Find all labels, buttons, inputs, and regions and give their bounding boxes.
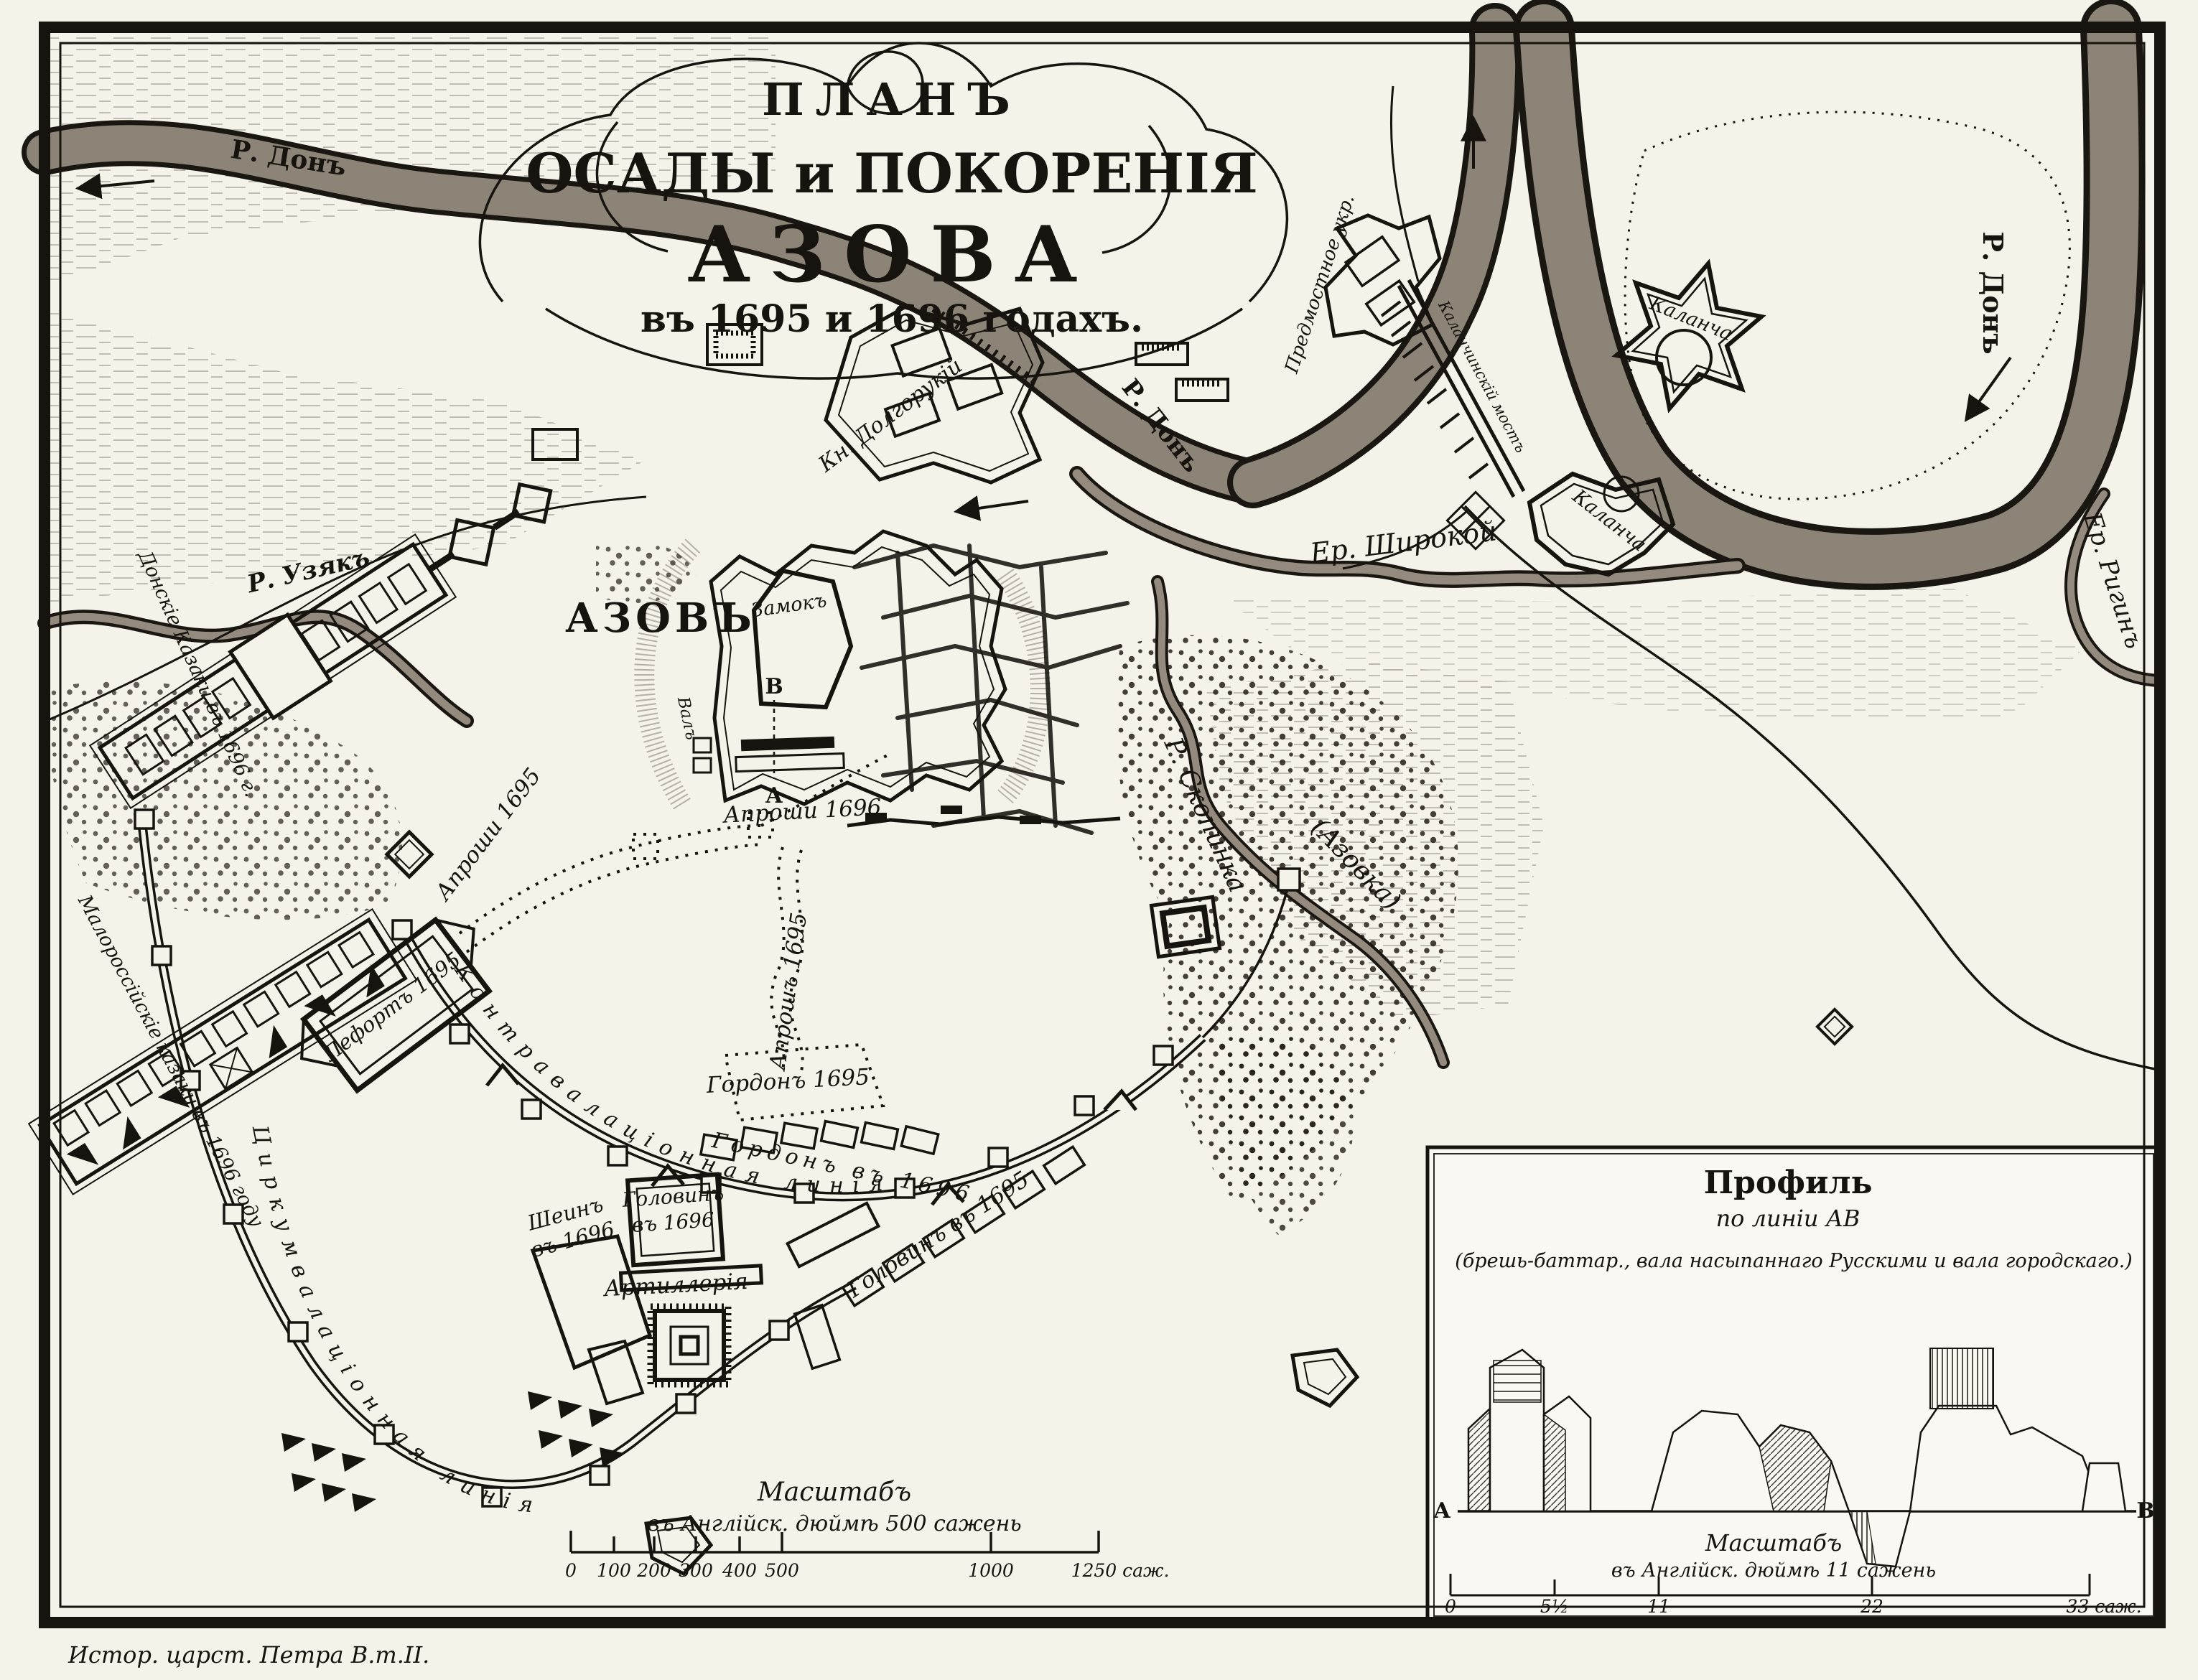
diamond-redoubt-road (1817, 1009, 1852, 1044)
source-caption: Истор. царст. Петра В.т.II. (67, 1641, 429, 1669)
map-scale-title: Масштабъ (757, 1478, 911, 1507)
inset-note: (брешь-баттар., вала насыпаннаго Русским… (1455, 1250, 2132, 1272)
inset-scale-title: Масштабъ (1705, 1529, 1842, 1557)
inset-point-a: A (1433, 1498, 1450, 1523)
circumvallation-line-label-text: Циркумвалаціонная линія (247, 1122, 544, 1518)
title-line1: ПЛАНЪ (762, 73, 1022, 126)
map-scale-tick: 100 (597, 1560, 631, 1581)
pentagon-redoubt-east (1293, 1350, 1357, 1406)
map-engraving: ПЛАНЪ ОСАДЫ и ПОКОРЕНІЯ АЗОВА въ 1695 и … (0, 0, 2198, 1680)
inset-title: Профиль (1704, 1165, 1873, 1201)
title-line4: въ 1695 и 1696 годахъ. (641, 297, 1143, 341)
aprosh-1695-vertical-label: Апрошъ 1695 (765, 911, 813, 1073)
redoubt-north-line (1278, 869, 1300, 890)
map-scale-tick: 200 (636, 1560, 671, 1581)
aproshi-1695-label: Апроши 1695 (429, 763, 546, 906)
map-scale: Масштабъ въ Англійск. дюймѣ 500 сажень 0… (565, 1478, 1169, 1581)
kalancha-star-label: Каланча (1646, 292, 1736, 345)
map-scale-tick: 0 (565, 1560, 577, 1581)
black-wedges-left (281, 1433, 376, 1512)
map-scale-tick: 1000 (968, 1560, 1014, 1581)
malorossian-cossacks-label: Малороссійскіе казаки въ 1696 году (73, 891, 269, 1231)
kalancha-star-fort (1616, 263, 1761, 409)
map-scale-tick: 300 (679, 1560, 713, 1581)
circumvallation-line-label: Циркумвалаціонная линія (247, 1122, 544, 1518)
channel-rigin-label: Ер. Ригинъ (2077, 508, 2148, 653)
profile-inset: Профиль по линіи АВ (брешь-баттар., вала… (1428, 1147, 2160, 1623)
map-scale-subtitle: въ Англійск. дюймѣ 500 сажень (647, 1511, 1022, 1536)
title-line2: ОСАДЫ и ПОКОРЕНІЯ (526, 141, 1258, 205)
golovin-1696-label-line2: въ 1696 (631, 1208, 715, 1237)
zamok-label: Замокъ (750, 589, 828, 622)
predmostnoe-label: Предмостное укр. (1281, 192, 1359, 376)
inset-point-b: B (2136, 1498, 2154, 1523)
point-b-label: В (765, 674, 783, 699)
river-don-right-label: Р. Донъ (1977, 231, 2009, 354)
map-scale-tick: 400 (722, 1560, 757, 1581)
inset-subtitle: по линіи АВ (1716, 1205, 1861, 1232)
channel-shirokoy-label: Ер. Широкой (1308, 515, 1499, 569)
title-line3: АЗОВА (687, 210, 1096, 300)
inset-scale-subtitle: въ Англійск. дюймѣ 11 сажень (1611, 1559, 1936, 1582)
engraved-map-plan-of-azov-siege: ПЛАНЪ ОСАДЫ и ПОКОРЕНІЯ АЗОВА въ 1695 и … (0, 0, 2198, 1680)
map-scale-tick: 1250 саж. (1071, 1560, 1170, 1581)
gordon-1695-label: Гордонъ 1695 (705, 1064, 870, 1098)
dolgoruky-label: Кн. Долгорукій (814, 353, 967, 477)
val-label: Валъ (674, 694, 701, 742)
town-street-mesh (854, 546, 1127, 833)
azov-city-label: АЗОВЪ (565, 594, 756, 642)
map-scale-tick: 500 (765, 1560, 799, 1581)
